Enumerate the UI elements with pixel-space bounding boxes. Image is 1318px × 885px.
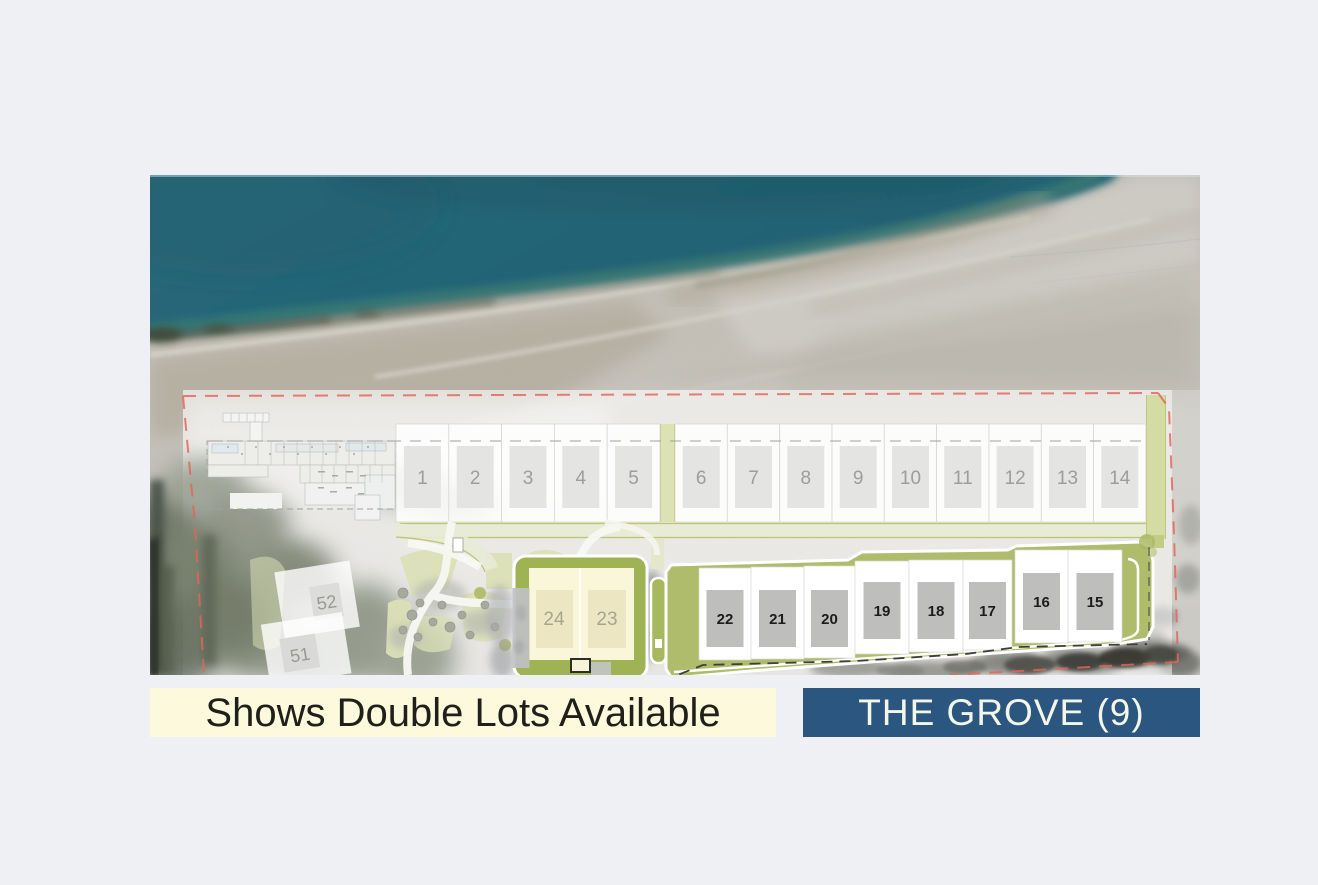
svg-text:13: 13	[1057, 468, 1078, 489]
svg-text:6: 6	[696, 468, 707, 489]
svg-text:23: 23	[596, 609, 617, 630]
svg-text:11: 11	[953, 468, 973, 489]
svg-text:14: 14	[1109, 468, 1131, 489]
svg-text:9: 9	[853, 468, 864, 489]
svg-text:3: 3	[523, 468, 534, 489]
svg-text:17: 17	[979, 603, 996, 620]
svg-text:15: 15	[1087, 594, 1104, 611]
svg-text:2: 2	[470, 468, 481, 489]
svg-text:10: 10	[900, 468, 921, 489]
svg-text:18: 18	[928, 603, 945, 620]
svg-text:21: 21	[769, 611, 786, 628]
svg-text:12: 12	[1005, 468, 1026, 489]
svg-text:4: 4	[576, 468, 587, 489]
svg-text:16: 16	[1033, 594, 1050, 611]
svg-text:1: 1	[417, 468, 428, 489]
svg-text:5: 5	[628, 468, 639, 489]
svg-text:20: 20	[821, 611, 838, 628]
svg-text:52: 52	[315, 591, 338, 614]
svg-text:8: 8	[801, 468, 812, 489]
svg-text:19: 19	[874, 603, 891, 620]
svg-text:22: 22	[717, 611, 734, 628]
svg-text:24: 24	[543, 609, 565, 630]
svg-text:7: 7	[748, 468, 759, 489]
svg-text:51: 51	[289, 644, 312, 667]
